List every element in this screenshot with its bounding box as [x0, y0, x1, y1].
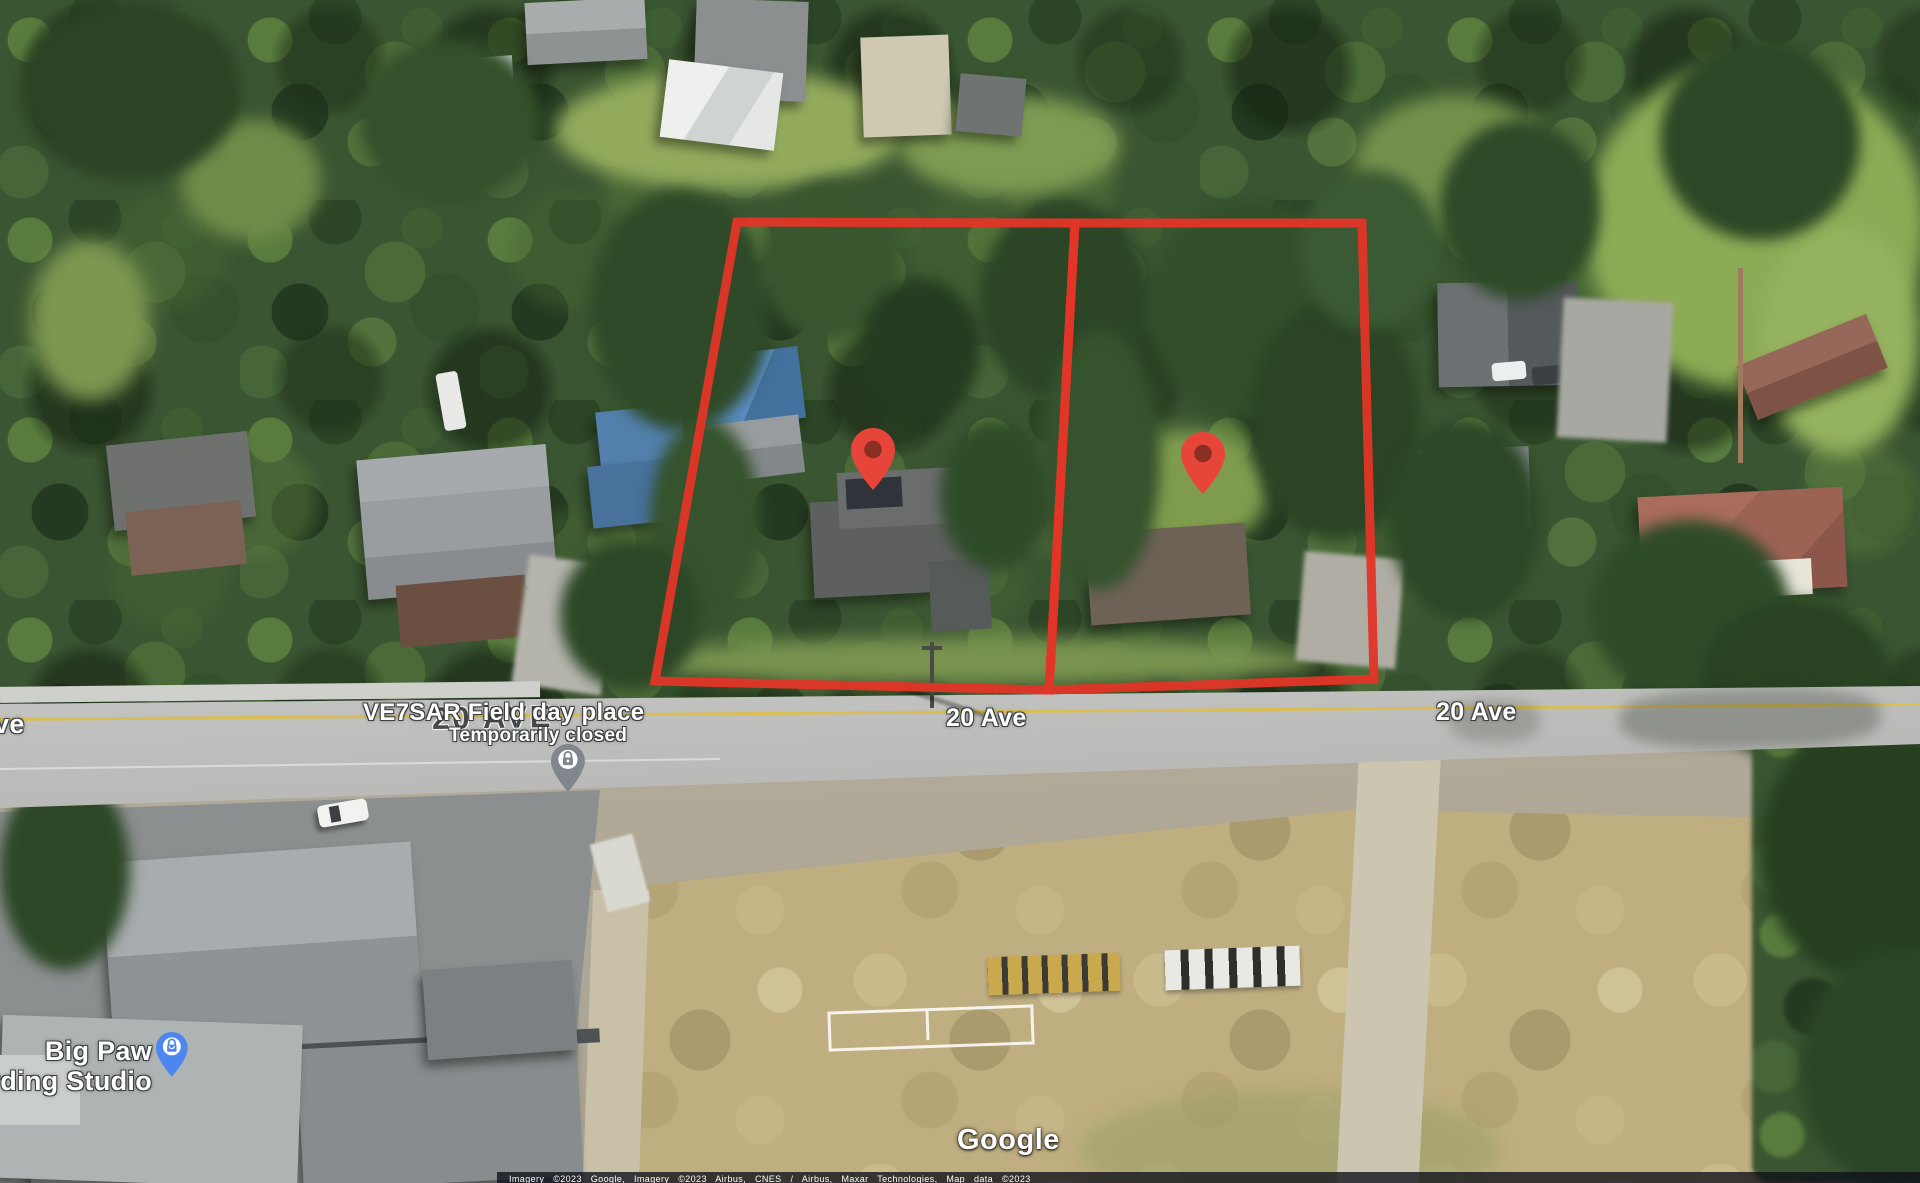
map-attribution[interactable]: Imagery ©2023 Google, Imagery ©2023 Airb… — [497, 1172, 1920, 1183]
temporarily-closed-pin-icon[interactable] — [551, 744, 585, 792]
location-pin-icon[interactable] — [851, 428, 895, 490]
map-overlays — [0, 0, 1920, 1183]
shopping-bag-pin-icon[interactable] — [156, 1032, 188, 1077]
satellite-map-view[interactable]: 20 AVE VE7SAR Field day place Temporaril… — [0, 0, 1920, 1183]
location-pin-icon[interactable] — [1181, 432, 1225, 494]
